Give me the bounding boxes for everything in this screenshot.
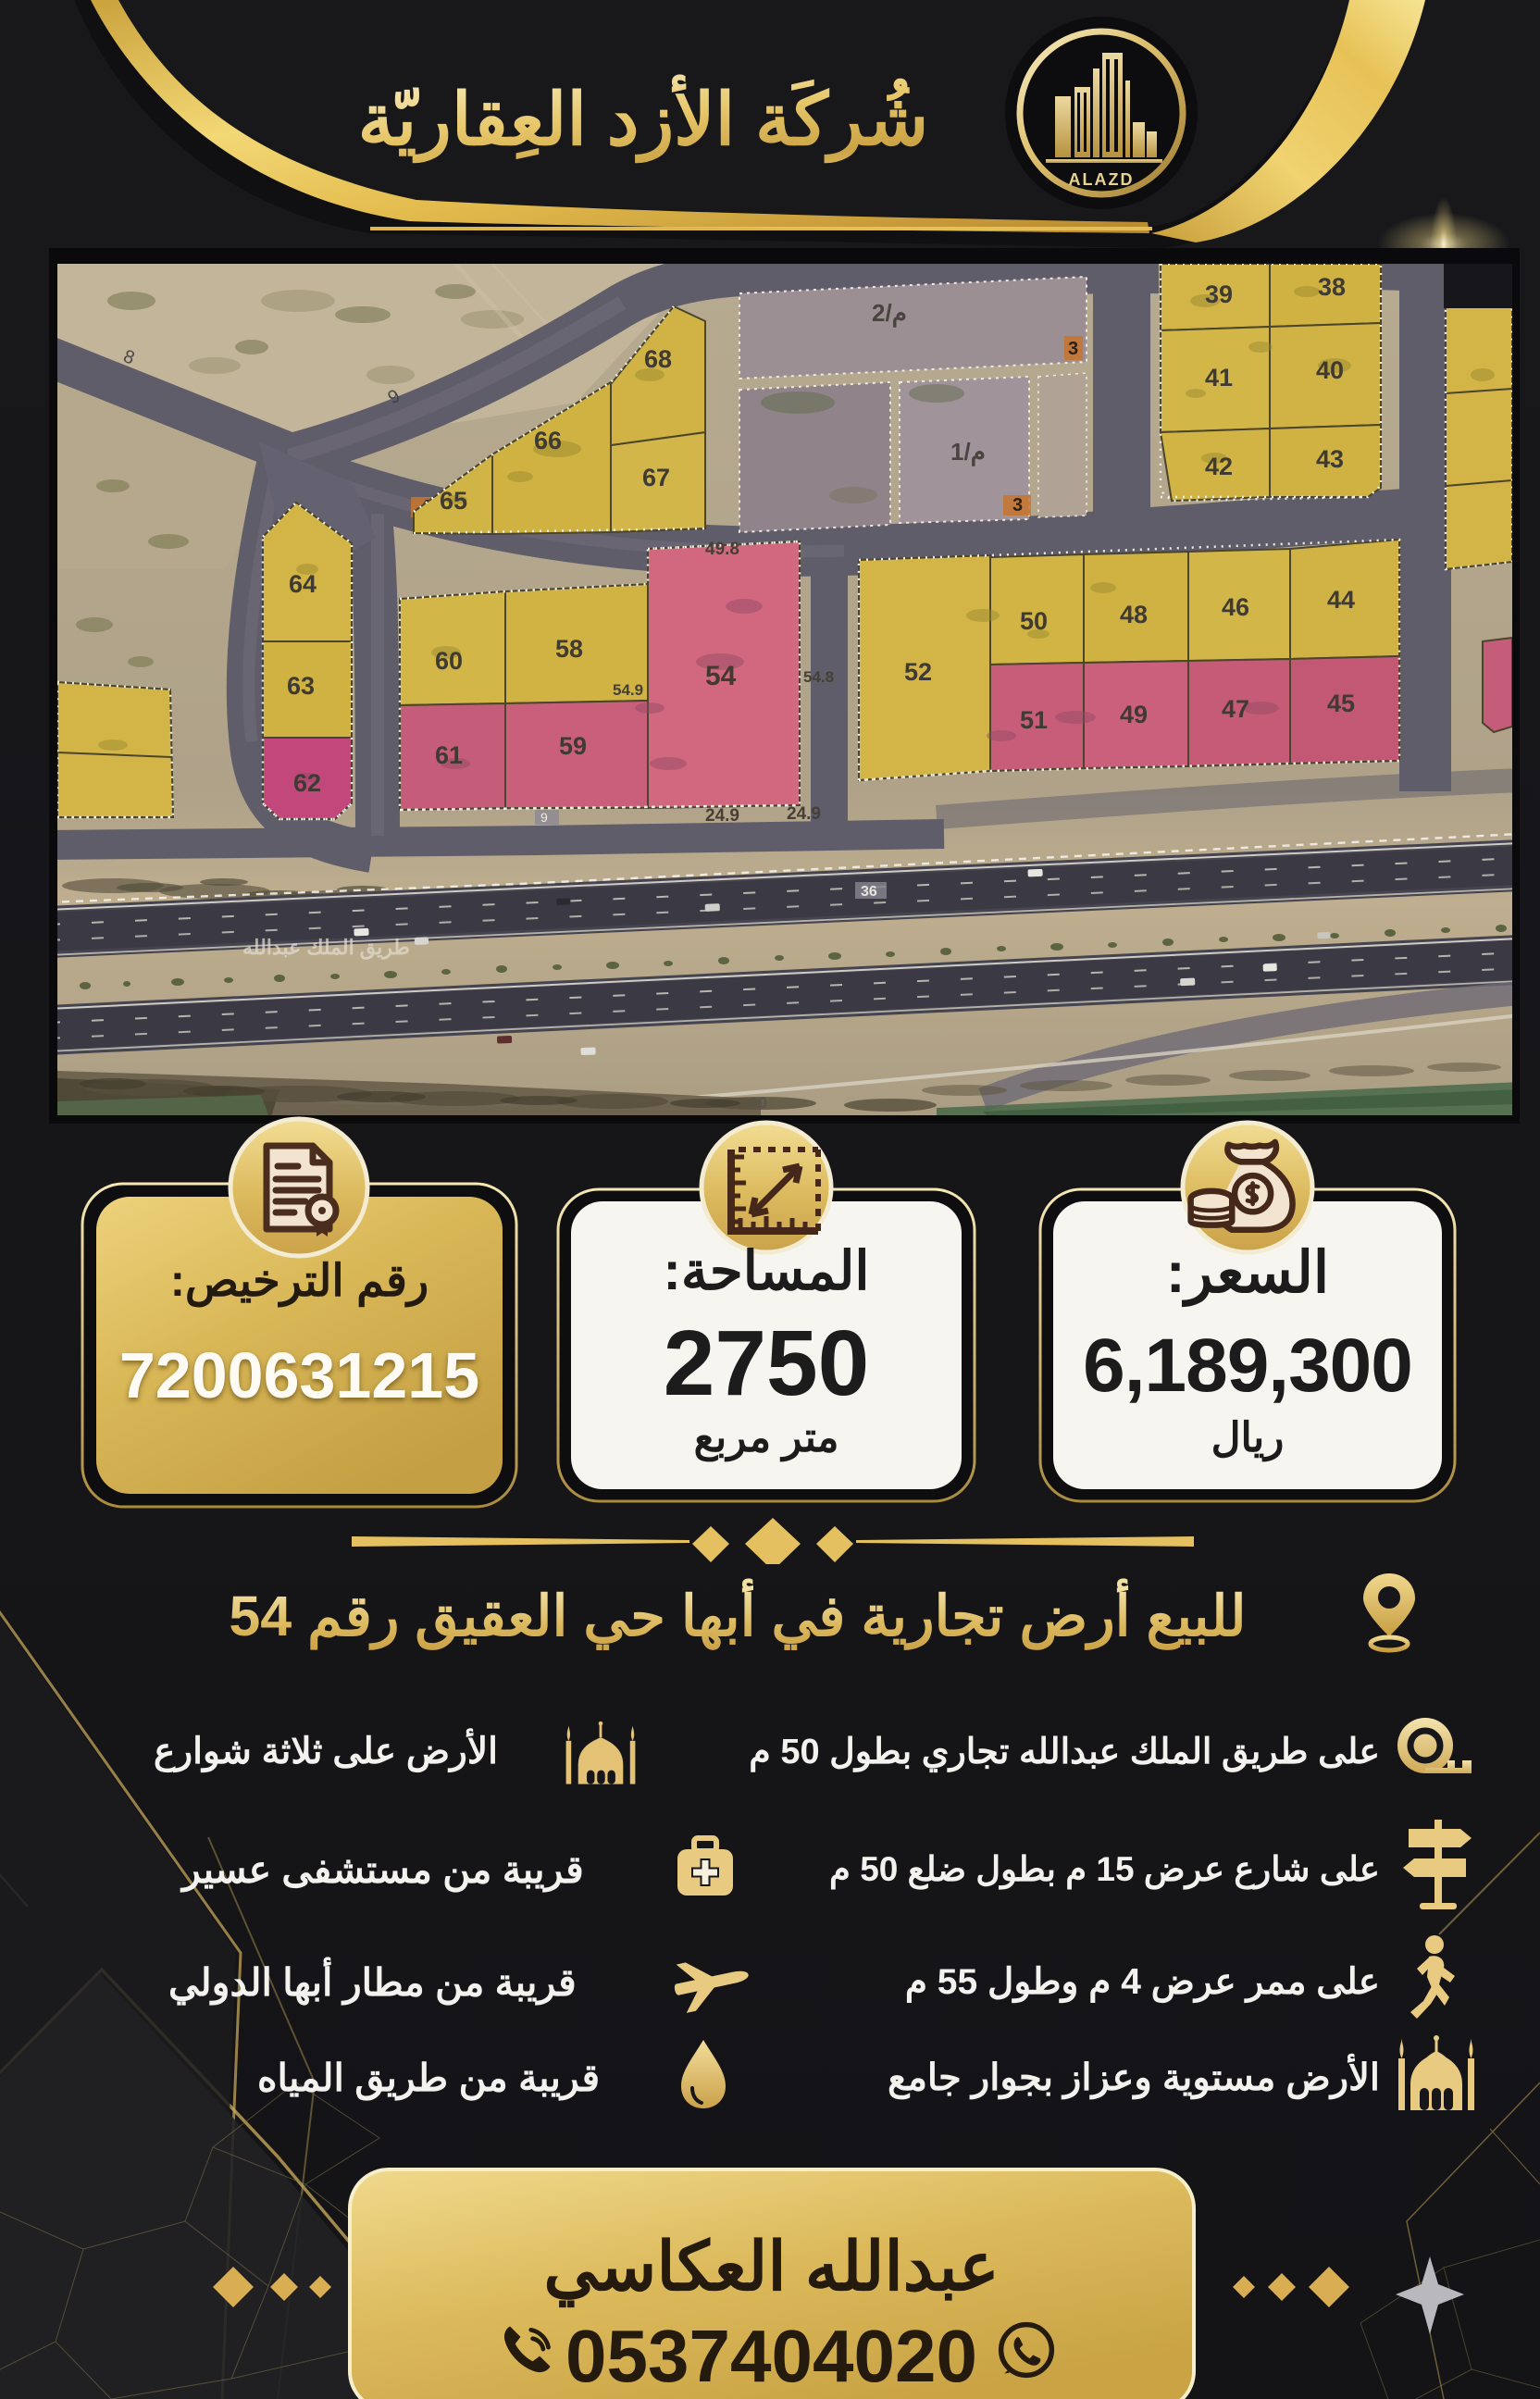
- svg-text:38: 38: [1318, 273, 1346, 301]
- svg-text:54: 54: [705, 661, 737, 691]
- svg-text:24.9: 24.9: [705, 806, 739, 826]
- svg-text:54.9: 54.9: [613, 681, 643, 699]
- svg-text:36: 36: [861, 884, 877, 900]
- svg-text:61: 61: [435, 741, 463, 769]
- svg-text:68: 68: [644, 345, 672, 373]
- svg-text:65: 65: [440, 487, 467, 515]
- svg-text:44: 44: [1327, 586, 1355, 614]
- svg-text:46: 46: [1222, 593, 1249, 621]
- svg-text:2/م: 2/م: [872, 299, 907, 328]
- svg-text:64: 64: [289, 570, 317, 598]
- svg-text:60: 60: [435, 647, 463, 675]
- svg-text:50: 50: [1020, 607, 1048, 635]
- svg-text:54.8: 54.8: [803, 668, 834, 686]
- svg-text:49.8: 49.8: [705, 540, 739, 559]
- svg-text:58: 58: [555, 635, 583, 663]
- svg-text:طريق الملك عبدالله: طريق الملك عبدالله: [242, 936, 410, 960]
- svg-text:39: 39: [1205, 280, 1233, 308]
- svg-text:49: 49: [1120, 701, 1148, 728]
- svg-text:67: 67: [642, 464, 670, 491]
- svg-text:41: 41: [1205, 364, 1233, 392]
- svg-text:3: 3: [1068, 339, 1078, 359]
- svg-text:52: 52: [904, 658, 932, 686]
- svg-text:66: 66: [534, 427, 562, 454]
- svg-text:59: 59: [559, 732, 587, 760]
- svg-text:1/م: 1/م: [950, 438, 986, 466]
- svg-text:24.9: 24.9: [787, 804, 821, 824]
- svg-text:48: 48: [1120, 601, 1148, 628]
- svg-text:62: 62: [293, 769, 321, 797]
- svg-text:47: 47: [1222, 695, 1249, 723]
- svg-text:42: 42: [1205, 453, 1233, 480]
- svg-text:45: 45: [1327, 690, 1355, 717]
- svg-text:3: 3: [1012, 495, 1023, 516]
- svg-text:43: 43: [1316, 445, 1344, 473]
- svg-text:ALAZD: ALAZD: [1069, 170, 1135, 189]
- svg-text:51: 51: [1020, 706, 1048, 734]
- svg-text:9: 9: [540, 810, 548, 825]
- svg-text:63: 63: [287, 672, 315, 700]
- svg-text:40: 40: [1316, 356, 1344, 384]
